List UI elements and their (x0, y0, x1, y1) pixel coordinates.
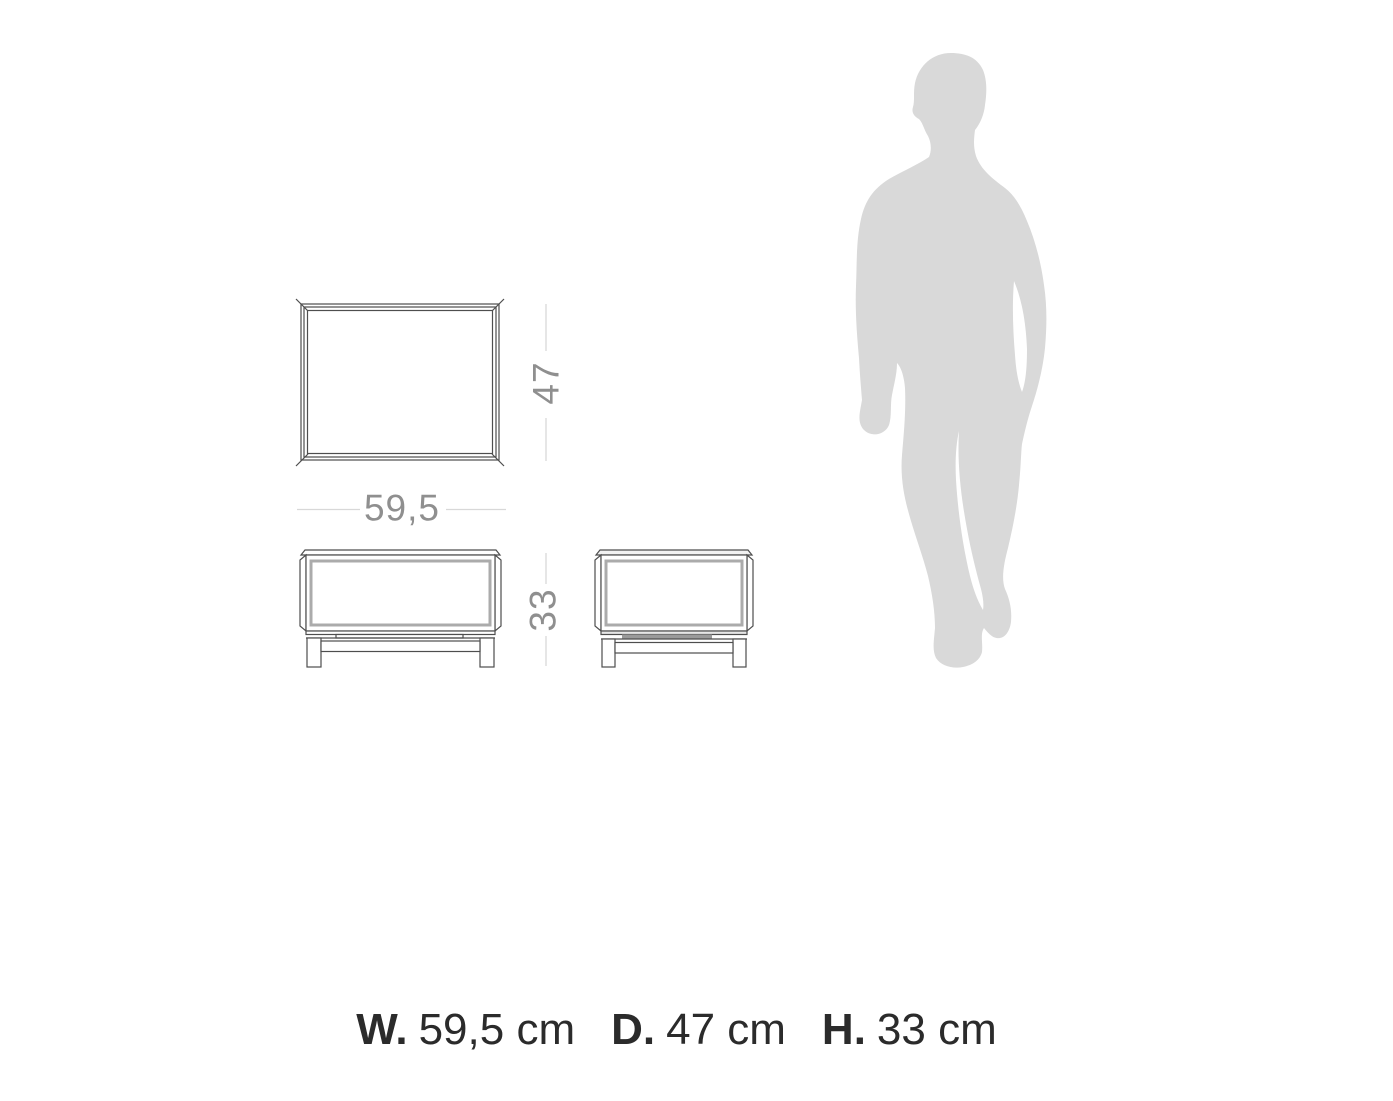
front-view-inner-panel (311, 561, 490, 625)
height-dim-label: 33 (523, 588, 564, 631)
top-view-inner-frame (308, 311, 493, 454)
side-view-right-rim (747, 555, 753, 631)
caption-height: H. 33 cm (822, 1000, 997, 1060)
human-scale-figure (856, 53, 1047, 668)
dimension-sheet: 59,5 47 33 W. 59,5 cm D. 47 cm H. 33 cm (0, 0, 1393, 1101)
person-silhouette (856, 53, 1047, 668)
side-view-bottom-lip (601, 631, 747, 635)
caption-depth-value: 47 cm (666, 1000, 786, 1060)
width-dim-label: 59,5 (364, 488, 440, 529)
depth-dim-label: 47 (526, 361, 567, 404)
front-view (300, 550, 501, 667)
top-view-mid-frame (304, 307, 496, 457)
caption-depth-prefix: D. (611, 1000, 655, 1060)
top-view-corner-miter-tr (492, 299, 504, 311)
front-view-stretcher (321, 641, 480, 652)
top-view-corner-miter-tl (296, 299, 308, 311)
front-view-top-cap (301, 550, 500, 555)
front-view-left-rim (300, 555, 306, 631)
side-view-shaded-bar (622, 635, 712, 640)
side-view-left-rim (595, 555, 601, 631)
side-view-inner-panel (606, 561, 742, 625)
side-view-top-cap (596, 550, 752, 555)
caption-width-prefix: W. (356, 1000, 407, 1060)
caption-depth: D. 47 cm (611, 1000, 786, 1060)
caption-height-value: 33 cm (877, 1000, 997, 1060)
dimensions-caption: W. 59,5 cm D. 47 cm H. 33 cm (0, 1000, 1373, 1060)
side-view-left-leg (602, 639, 615, 667)
caption-height-prefix: H. (822, 1000, 866, 1060)
caption-width: W. 59,5 cm (356, 1000, 575, 1060)
top-view-outer-frame (301, 304, 499, 460)
side-view (595, 550, 753, 667)
caption-width-value: 59,5 cm (419, 1000, 576, 1060)
dimension-drawing: 59,5 47 33 (0, 0, 1393, 1101)
side-view-right-leg (733, 639, 746, 667)
top-view (296, 299, 504, 466)
front-view-right-leg (480, 638, 494, 667)
front-view-right-rim (495, 555, 501, 631)
front-view-left-leg (307, 638, 321, 667)
side-view-stretcher (615, 643, 733, 654)
